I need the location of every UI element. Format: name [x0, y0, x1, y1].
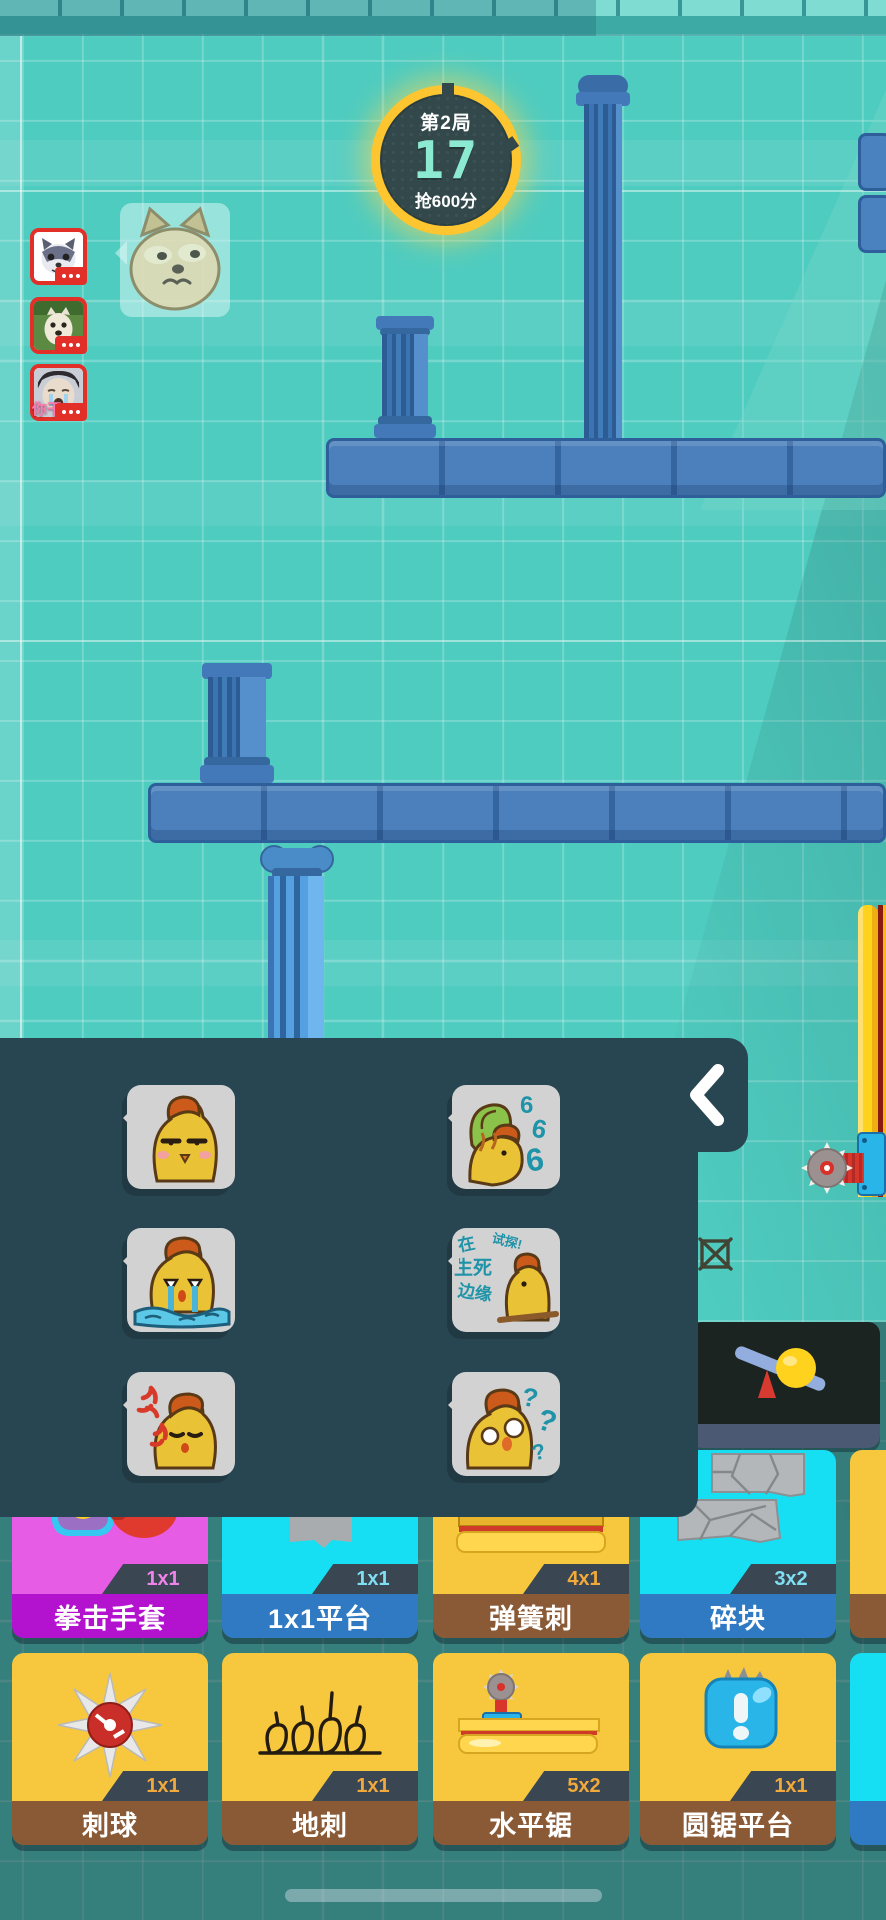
- emote-666-chicken[interactable]: 6 6 6: [452, 1085, 560, 1189]
- toolbar-card-partial[interactable]: [850, 1450, 886, 1638]
- spike-ball-icon: [56, 1671, 164, 1779]
- horizontal-saw-icon: [455, 1663, 607, 1783]
- crying-chicken-icon: [127, 1228, 235, 1332]
- toolbar-card-ground-spikes[interactable]: 1x1 地刺: [222, 1653, 418, 1845]
- toolbar-card-saw-platform[interactable]: 1x1 圆锯平台: [640, 1653, 836, 1845]
- round-timer-badge: 第2局 17 抢600分: [371, 85, 521, 235]
- edge-column-block: [858, 195, 886, 253]
- card-label: 弹簧刺: [433, 1594, 629, 1638]
- column-capital: [266, 848, 328, 870]
- circular-saw-icon: [801, 1142, 853, 1194]
- player-avatar-husky[interactable]: [30, 228, 87, 285]
- player-avatar-meme[interactable]: 你干: [30, 364, 87, 421]
- column-shaft: [268, 876, 324, 1038]
- emote-panel: [0, 1038, 698, 1517]
- emote-smug-chicken[interactable]: [127, 1085, 235, 1189]
- objective-label: 抢600分: [415, 187, 477, 212]
- angry-chicken-icon: [127, 1372, 235, 1476]
- smug-chicken-icon: [127, 1085, 235, 1189]
- timer-ring-notch: [442, 83, 454, 97]
- emote-life-death-chicken[interactable]: 在 生死 边缘 试探!: [452, 1228, 560, 1332]
- left-wall-strip: [0, 36, 22, 1038]
- svg-text:试探!: 试探!: [491, 1230, 524, 1252]
- card-label: 圆锯平台: [640, 1801, 836, 1845]
- collapse-emote-panel-button[interactable]: [620, 1038, 748, 1152]
- column-shaft: [208, 677, 266, 759]
- saw-cube-icon: [688, 1661, 792, 1785]
- stone-platform-upper: [326, 438, 886, 498]
- stone-platform-lower: [148, 783, 886, 843]
- svg-text:边缘: 边缘: [456, 1280, 493, 1305]
- card-label: 刺球: [12, 1801, 208, 1845]
- toolbar-scrollbar[interactable]: [285, 1889, 602, 1902]
- top-dark-band: [0, 0, 596, 36]
- column-shaft: [382, 334, 428, 418]
- card-label: 碎块: [640, 1594, 836, 1638]
- card-label: 1x1平台: [222, 1594, 418, 1638]
- toolbar-card-seesaw[interactable]: [690, 1322, 880, 1448]
- svg-text:6: 6: [523, 1141, 546, 1179]
- more-options-icon[interactable]: [55, 267, 87, 285]
- card-label: 拳击手套: [12, 1594, 208, 1638]
- column-shaft: [584, 104, 622, 438]
- emote-crying-chicken[interactable]: [127, 1228, 235, 1332]
- zone-marker-icon: [696, 1234, 736, 1274]
- svg-text:?: ?: [520, 1381, 541, 1413]
- timer-ring-notch: [501, 136, 519, 154]
- more-options-icon[interactable]: [55, 336, 87, 354]
- svg-text:在: 在: [456, 1232, 477, 1255]
- svg-text:生死: 生死: [454, 1256, 492, 1279]
- column-base: [374, 424, 436, 438]
- 666-chicken-icon: 6 6 6: [452, 1085, 560, 1189]
- card-label-bar: [690, 1424, 880, 1448]
- more-options-icon[interactable]: [55, 403, 87, 421]
- ground-spikes-icon: [252, 1681, 388, 1771]
- card-label: 水平锯: [433, 1801, 629, 1845]
- confused-chicken-icon: ? ? ?: [452, 1372, 560, 1476]
- countdown-value: 17: [413, 135, 480, 187]
- svg-text:?: ?: [533, 1403, 560, 1440]
- player-avatar-puppy[interactable]: [30, 297, 87, 354]
- toolbar-card-spike-ball[interactable]: 1x1 刺球: [12, 1653, 208, 1845]
- edge-column-block: [858, 133, 886, 191]
- svg-text:6: 6: [520, 1092, 533, 1119]
- chevron-left-icon: [686, 1064, 726, 1126]
- doge-face-icon: [120, 203, 230, 317]
- card-label: 地刺: [222, 1801, 418, 1845]
- seesaw-icon: [730, 1336, 840, 1414]
- emote-angry-chicken[interactable]: [127, 1372, 235, 1476]
- column-base: [200, 765, 274, 783]
- toolbar-card-horizontal-saw[interactable]: 5x2 水平锯: [433, 1653, 629, 1845]
- life-death-chicken-icon: 在 生死 边缘 试探!: [452, 1228, 560, 1332]
- emote-confused-chicken[interactable]: ? ? ?: [452, 1372, 560, 1476]
- toolbar-card-partial[interactable]: [850, 1653, 886, 1845]
- grid-line: [0, 640, 886, 642]
- game-screen: 第2局 17 抢600分: [0, 0, 886, 1920]
- doge-emote-bubble: [120, 203, 230, 317]
